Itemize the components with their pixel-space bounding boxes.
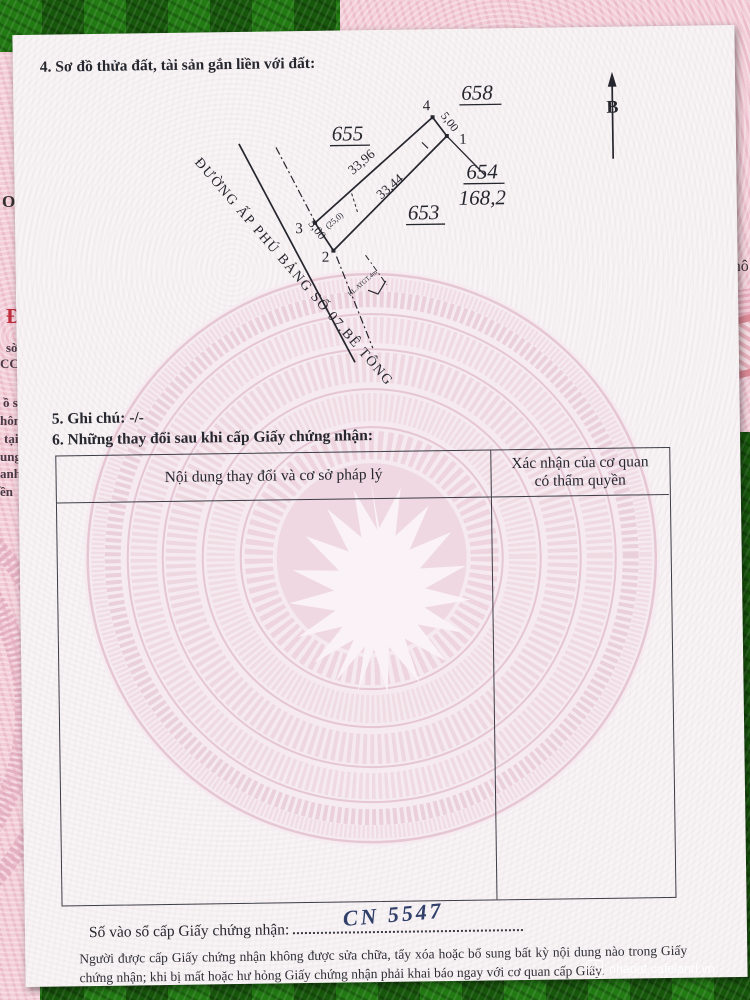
adjacent-parcel-658: 658	[461, 80, 493, 104]
table-header-content: Nội dung thay đổi và cơ sở pháp lý	[56, 450, 491, 503]
table-header-confirmation-line2: có thẩm quyền	[534, 472, 626, 491]
certificate-page: B HL.ATGT.4m 658 655 653 654 168,2	[12, 25, 747, 987]
photo-site-watermark: nhadat.cafeland.vn	[586, 960, 715, 977]
edge-length-top: 5,00	[438, 109, 462, 134]
north-label: B	[606, 97, 618, 117]
table-column-divider	[491, 496, 498, 899]
edge-length-se: 33,44	[373, 171, 406, 202]
left-page-text-fragment: ền	[0, 484, 13, 500]
vertex-label-3: 3	[295, 221, 303, 237]
left-page-text-fragment: tại	[4, 431, 18, 447]
parcel-number: 654	[466, 159, 498, 183]
vertex-label-1: 1	[459, 132, 467, 148]
registry-number-label: Số vào sổ cấp Giấy chứng nhận:	[89, 921, 290, 941]
corridor-bracket	[368, 281, 386, 294]
edge-tick	[422, 142, 428, 148]
parcel-area: 168,2	[459, 185, 507, 210]
road-boundary-dashdot	[276, 147, 315, 223]
corridor-note: HL.ATGT.4m	[347, 269, 379, 298]
vertex-label-4: 4	[423, 98, 431, 114]
camera-icon	[586, 960, 603, 977]
segment-tick	[352, 193, 358, 213]
table-header-confirmation-line1: Xác nhận của cơ quan	[511, 453, 649, 473]
photo-site-watermark-text: nhadat.cafeland.vn	[609, 962, 715, 976]
adjacent-parcel-655: 655	[332, 121, 364, 145]
adjacent-parcel-653: 653	[408, 200, 440, 224]
vertex-label-2: 2	[322, 250, 330, 266]
road-name-label: ĐƯỜNG ẤP PHÚ BẢNG SỐ 07.BÊ TÔNG	[191, 153, 398, 389]
section5-note: 5. Ghi chú: -/-	[52, 409, 144, 428]
edge-length-nw: 33,96	[345, 146, 378, 177]
table-header-confirmation: Xác nhận của cơ quan có thẩm quyền	[490, 448, 669, 497]
left-page-text-fragment: ồ s	[3, 395, 18, 411]
changes-table: Nội dung thay đổi và cơ sở pháp lý Xác n…	[55, 447, 676, 907]
section4-title: 4. Sơ đồ thửa đất, tài sản gắn liền với …	[40, 55, 316, 77]
